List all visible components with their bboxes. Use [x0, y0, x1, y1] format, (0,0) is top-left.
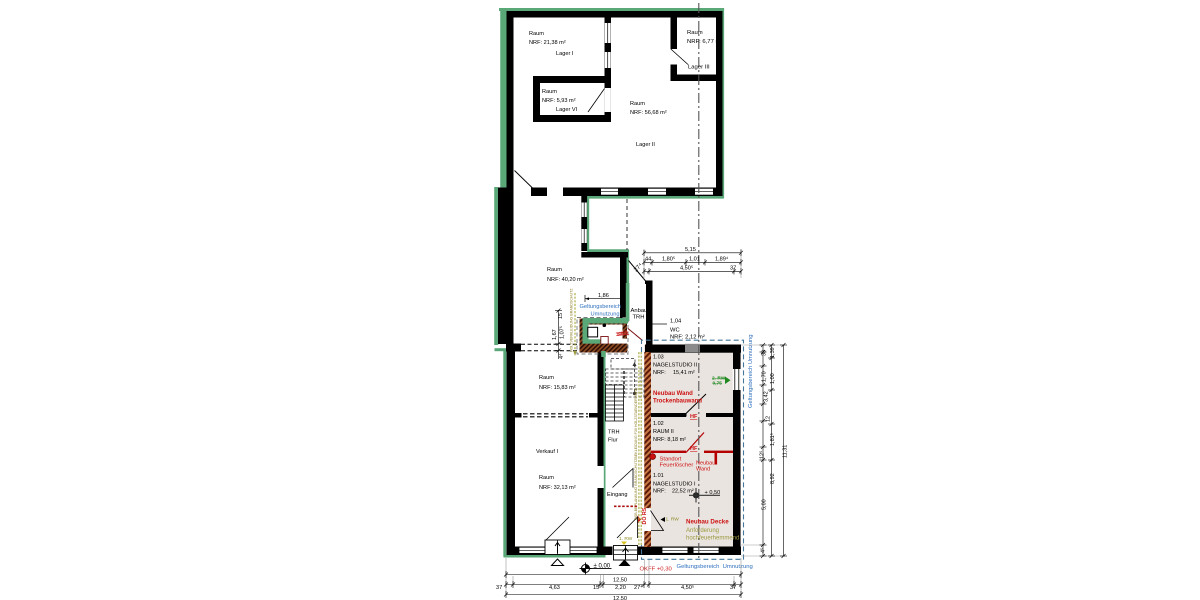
svg-text:HF: HF — [690, 414, 698, 420]
svg-text:1. RW: 1. RW — [619, 536, 633, 542]
svg-text:1.02: 1.02 — [653, 421, 664, 427]
svg-text:NRF:: NRF: — [653, 370, 666, 376]
svg-text:OSB-BEPLANKUNG BRANDSCHUTZBEKL: OSB-BEPLANKUNG BRANDSCHUTZBEKLEIDUNG F30… — [634, 387, 638, 520]
svg-text:+ 0,50: + 0,50 — [705, 490, 721, 496]
svg-text:15: 15 — [593, 585, 599, 591]
svg-text:NRF: 15,83 m²: NRF: 15,83 m² — [539, 385, 576, 391]
svg-text:Geltungsbereich Umnutzung: Geltungsbereich Umnutzung — [677, 564, 753, 570]
svg-text:Umnutzung: Umnutzung — [591, 312, 620, 318]
svg-text:Geltungsbereich: Geltungsbereich — [580, 304, 621, 310]
svg-text:NRF: 56,68 m²: NRF: 56,68 m² — [630, 110, 667, 116]
svg-text:hochfeuerhemmend: hochfeuerhemmend — [686, 536, 739, 542]
svg-text:NRF: 2,12 m²: NRF: 2,12 m² — [670, 335, 705, 341]
svg-text:44: 44 — [645, 257, 651, 263]
svg-text:4,50⁵: 4,50⁵ — [681, 584, 694, 591]
svg-text:Lager II: Lager II — [636, 142, 655, 148]
svg-text:12,50: 12,50 — [613, 596, 627, 600]
svg-text:NRF:: NRF: — [653, 489, 666, 495]
svg-text:1.03: 1.03 — [653, 355, 664, 361]
svg-text:4,50⁵: 4,50⁵ — [680, 265, 693, 272]
svg-text:4,63: 4,63 — [549, 585, 560, 591]
svg-text:Anforderung: Anforderung — [686, 528, 719, 534]
svg-text:Neubau Wand: Neubau Wand — [653, 391, 693, 397]
svg-text:± 0,00: ± 0,00 — [594, 563, 611, 569]
svg-text:Lager VI: Lager VI — [556, 107, 578, 113]
svg-text:Raum: Raum — [630, 101, 645, 107]
svg-text:0,75: 0,75 — [713, 381, 723, 387]
svg-text:1. RW: 1. RW — [666, 517, 680, 523]
svg-text:8,92: 8,92 — [770, 473, 776, 484]
svg-text:Raum: Raum — [529, 31, 544, 37]
svg-text:37: 37 — [730, 266, 736, 272]
svg-text:11,31: 11,31 — [783, 445, 789, 458]
svg-text:Raum: Raum — [542, 89, 557, 95]
svg-text:12,50: 12,50 — [613, 578, 627, 584]
svg-text:1,00: 1,00 — [770, 373, 776, 384]
svg-text:1,86: 1,86 — [598, 293, 609, 299]
svg-text:Lager I: Lager I — [556, 51, 574, 57]
svg-text:NRF: 32,13 m²: NRF: 32,13 m² — [539, 485, 576, 491]
svg-text:Wand: Wand — [696, 467, 710, 473]
svg-text:HF: HF — [690, 446, 698, 452]
svg-text:RAUM II: RAUM II — [653, 429, 674, 435]
svg-text:Raum: Raum — [539, 375, 554, 381]
svg-text:12: 12 — [766, 416, 772, 422]
svg-text:1.01: 1.01 — [653, 473, 664, 479]
svg-text:NRF: 8,18 m²: NRF: 8,18 m² — [653, 437, 686, 443]
svg-text:NRF: 21,38 m²: NRF: 21,38 m² — [529, 40, 566, 46]
svg-text:DO RS: DO RS — [642, 507, 648, 524]
svg-text:NRF: 40,20 m²: NRF: 40,20 m² — [547, 277, 584, 283]
svg-text:NAGELSTUDIO I: NAGELSTUDIO I — [653, 482, 696, 488]
svg-text:Trockenbauwand: Trockenbauwand — [653, 399, 702, 405]
svg-text:Lager III: Lager III — [688, 65, 710, 71]
svg-text:5,15: 5,15 — [685, 247, 696, 253]
svg-text:38: 38 — [762, 350, 768, 356]
svg-text:Standort: Standort — [660, 456, 682, 462]
svg-text:NRF: 5,93 m²: NRF: 5,93 m² — [542, 98, 576, 104]
svg-text:22,52 m²: 22,52 m² — [672, 489, 694, 495]
svg-text:WC: WC — [670, 328, 680, 334]
svg-text:2,20: 2,20 — [615, 585, 626, 591]
svg-text:3,42: 3,42 — [764, 391, 770, 402]
svg-text:Raum: Raum — [687, 30, 703, 36]
svg-text:1,07⁵: 1,07⁵ — [559, 326, 566, 339]
svg-text:1,81⁵: 1,81⁵ — [769, 433, 776, 446]
svg-text:1,89⁴: 1,89⁴ — [715, 256, 729, 263]
svg-text:4⁵: 4⁵ — [760, 548, 767, 553]
svg-text:Geltungsbereich Umnutzung: Geltungsbereich Umnutzung — [748, 335, 754, 408]
svg-text:37: 37 — [730, 585, 736, 591]
svg-text:Verkauf I: Verkauf I — [536, 449, 559, 455]
svg-text:Raum: Raum — [539, 475, 554, 481]
svg-text:1,80⁵: 1,80⁵ — [662, 256, 675, 263]
svg-text:1,39: 1,39 — [770, 347, 776, 358]
svg-text:Anbau: Anbau — [631, 308, 648, 314]
svg-text:12⁵: 12⁵ — [759, 451, 766, 459]
svg-text:Raum: Raum — [547, 267, 562, 273]
svg-text:Feuerlöscher: Feuerlöscher — [660, 463, 694, 469]
svg-text:1,70: 1,70 — [762, 371, 768, 382]
svg-text:NAGELSTUDIO II: NAGELSTUDIO II — [653, 363, 697, 369]
svg-text:37: 37 — [496, 585, 502, 591]
svg-text:TRH: TRH — [633, 315, 645, 321]
svg-text:Eingang: Eingang — [607, 492, 628, 498]
svg-text:TRH: TRH — [608, 430, 620, 436]
svg-text:HOLZVERKLEIDUNG BRANDSCHUTZ: HOLZVERKLEIDUNG BRANDSCHUTZ — [570, 288, 574, 352]
svg-text:15: 15 — [558, 313, 564, 319]
svg-text:27⁴: 27⁴ — [634, 584, 643, 591]
svg-text:NRF: 6,77 m²: NRF: 6,77 m² — [687, 39, 722, 45]
svg-text:5,00: 5,00 — [762, 499, 768, 510]
svg-text:1,01: 1,01 — [689, 257, 700, 263]
svg-text:4⁴: 4⁴ — [558, 353, 565, 359]
svg-text:Neubau Decke: Neubau Decke — [686, 519, 729, 526]
svg-text:1,04: 1,04 — [670, 319, 682, 325]
svg-text:15,41 m²: 15,41 m² — [673, 370, 695, 376]
svg-text:Flur: Flur — [608, 438, 618, 444]
svg-text:1,67: 1,67 — [552, 329, 558, 340]
